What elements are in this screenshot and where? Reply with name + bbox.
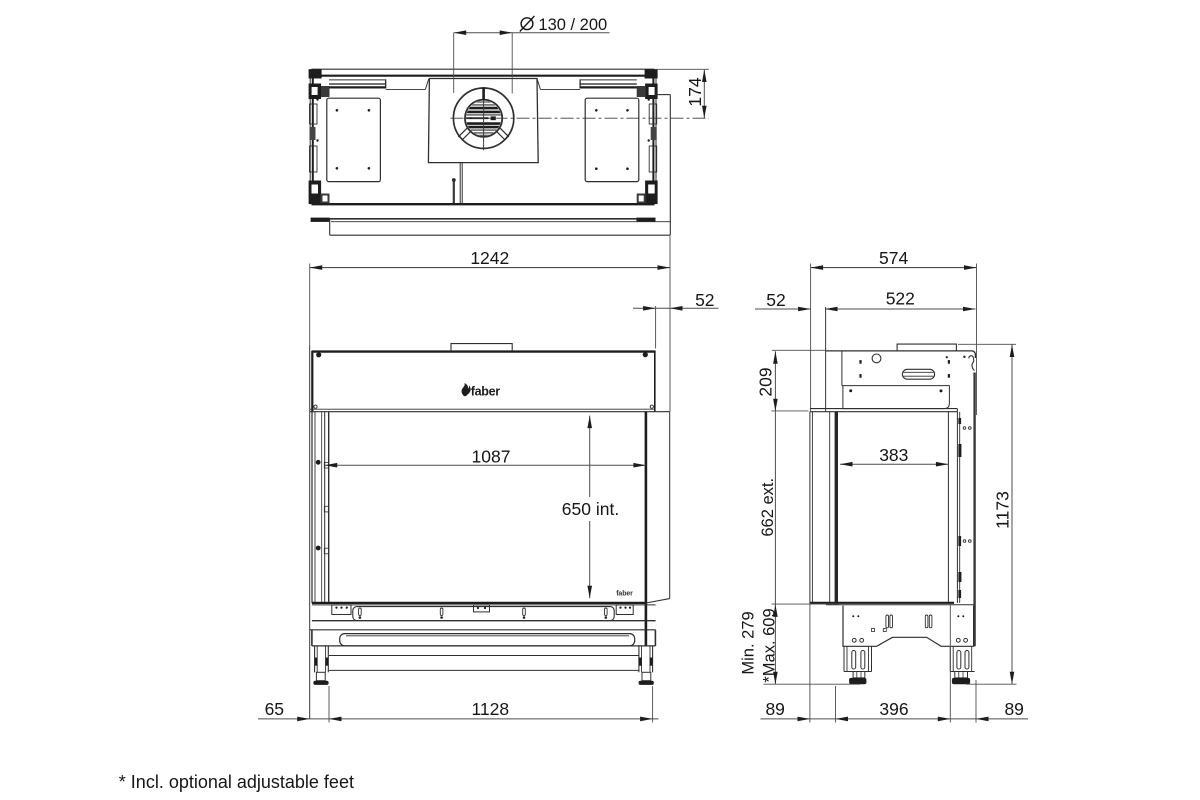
svg-text:1087: 1087	[472, 446, 511, 466]
svg-text:383: 383	[879, 445, 908, 465]
svg-text:* Incl. optional adjustable fe: * Incl. optional adjustable feet	[119, 772, 354, 792]
svg-text:65: 65	[265, 699, 284, 719]
svg-text:1173: 1173	[992, 491, 1012, 529]
svg-text:52: 52	[695, 290, 714, 310]
svg-text:396: 396	[879, 699, 908, 719]
svg-text:faber: faber	[616, 590, 633, 597]
svg-text:209: 209	[756, 367, 776, 396]
svg-text:650 int.: 650 int.	[562, 499, 619, 519]
svg-text:faber: faber	[471, 385, 501, 399]
svg-text:89: 89	[1004, 699, 1023, 719]
svg-text:89: 89	[765, 699, 784, 719]
svg-text:1128: 1128	[471, 699, 509, 719]
svg-text:130 / 200: 130 / 200	[538, 16, 607, 34]
svg-text:574: 574	[879, 248, 908, 268]
svg-text:522: 522	[886, 288, 915, 308]
svg-text:*Max. 609: *Max. 609	[761, 608, 779, 682]
svg-text:662 ext.: 662 ext.	[759, 478, 777, 537]
svg-text:174: 174	[685, 77, 705, 106]
svg-text:1242: 1242	[470, 248, 509, 268]
svg-text:52: 52	[766, 290, 785, 310]
svg-text:Min. 279: Min. 279	[740, 611, 758, 674]
